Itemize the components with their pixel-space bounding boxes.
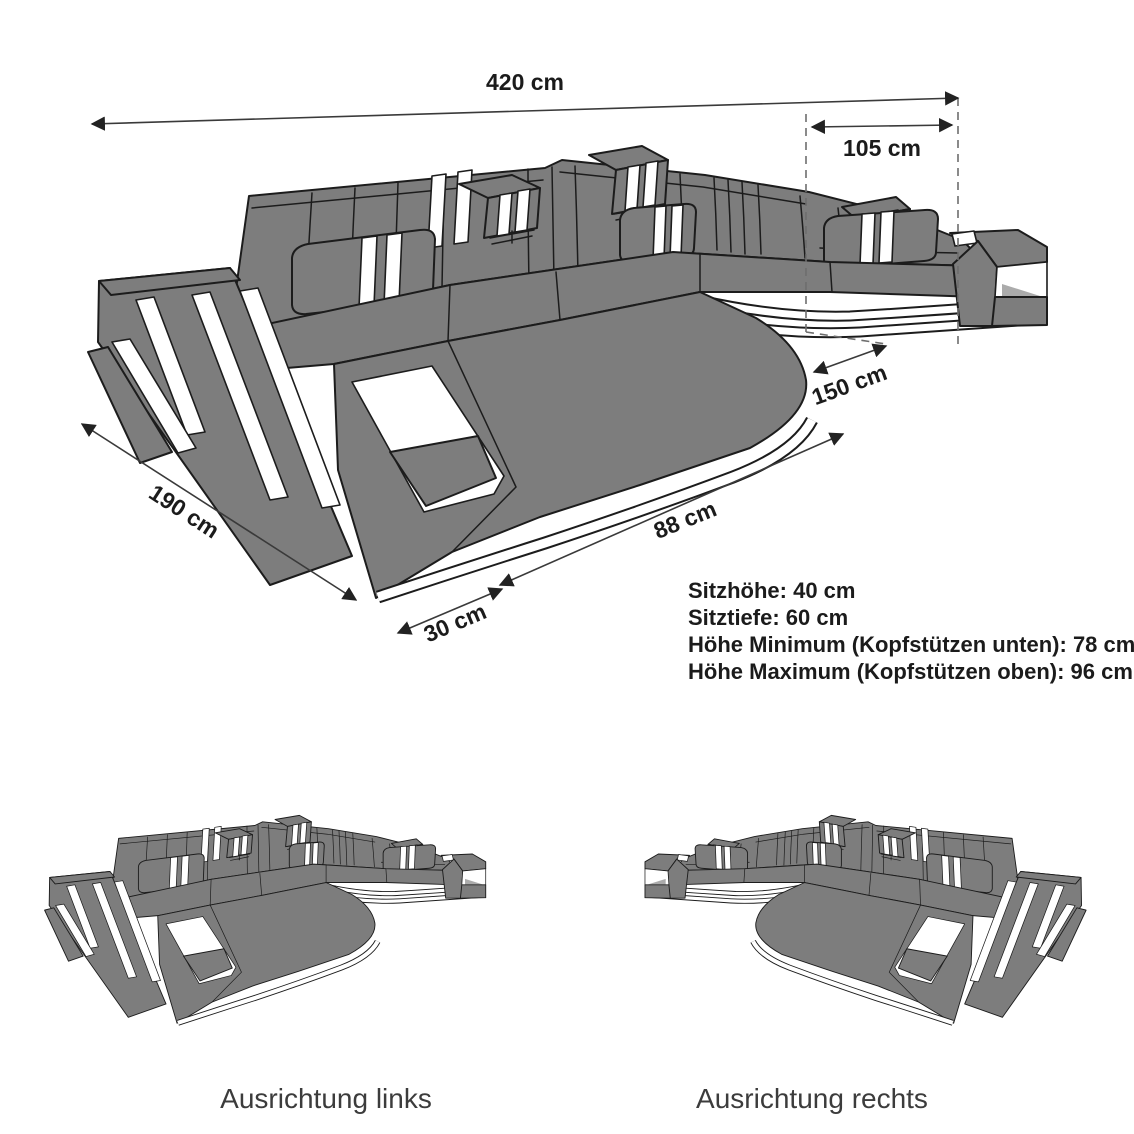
spec-line: Sitzhöhe: 40 cm (688, 578, 855, 603)
spec-line: Sitztiefe: 60 cm (688, 605, 848, 630)
spec-line: Höhe Minimum (Kopfstützen unten): 78 cm (688, 632, 1134, 657)
sofa-main-view (88, 146, 1047, 598)
dimension-label-150: 150 cm (808, 359, 890, 410)
diagram-canvas: 420 cm 105 cm 150 cm 190 cm 30 cm 88 cm … (0, 0, 1134, 1134)
sofa-variant-right-thumbnail (645, 815, 1086, 1023)
dimension-line-105 (812, 125, 952, 127)
dimension-label-30: 30 cm (420, 598, 490, 647)
dimension-label-420: 420 cm (486, 69, 564, 95)
spec-line: Höhe Maximum (Kopfstützen oben): 96 cm (688, 659, 1133, 684)
dimension-line-420 (92, 98, 958, 124)
sofa-variant-left-thumbnail (45, 815, 486, 1023)
dimension-label-105: 105 cm (843, 135, 921, 161)
spec-text-block: Sitzhöhe: 40 cm Sitztiefe: 60 cm Höhe Mi… (688, 578, 1134, 684)
variant-caption-right: Ausrichtung rechts (696, 1083, 928, 1114)
variant-caption-left: Ausrichtung links (220, 1083, 432, 1114)
sofa-dimension-diagram: 420 cm 105 cm 150 cm 190 cm 30 cm 88 cm … (0, 0, 1134, 1134)
